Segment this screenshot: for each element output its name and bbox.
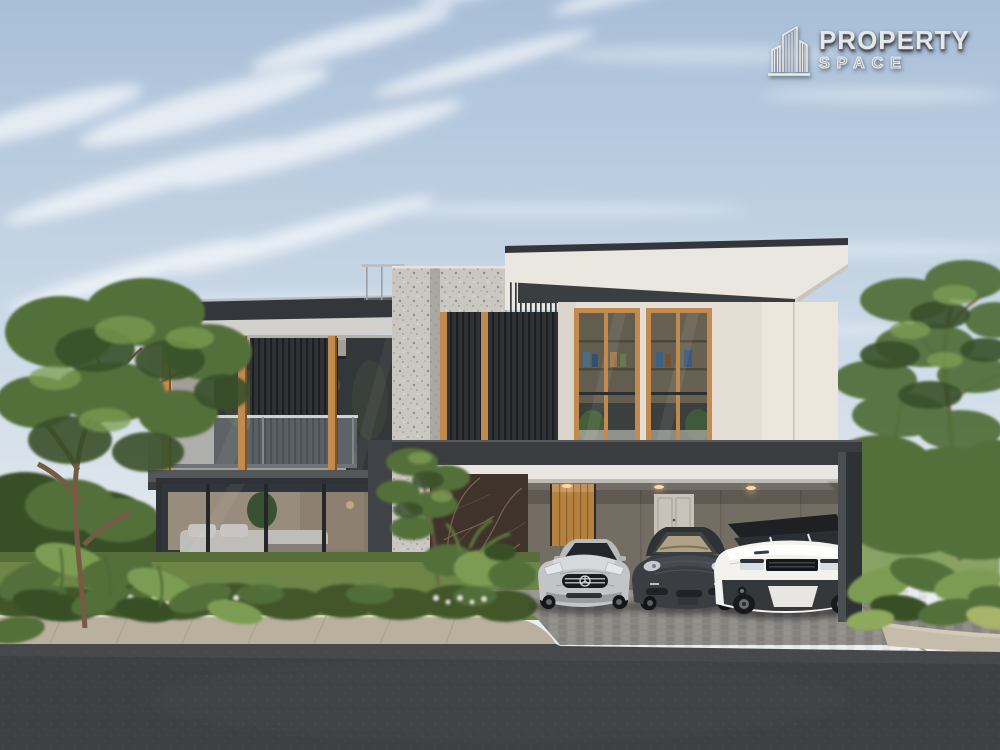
rendering-canvas: PROPERTY SPACE (0, 0, 1000, 750)
suv-grille (766, 559, 818, 571)
logo-text-space: SPACE (819, 56, 970, 72)
upper-window-2 (646, 308, 712, 454)
asphalt-road (0, 644, 1000, 750)
car-white-suv (714, 514, 858, 619)
upper-window-1 (574, 308, 640, 454)
property-space-logo: PROPERTY SPACE (766, 20, 970, 78)
logo-text-property: PROPERTY (819, 27, 970, 53)
carport-fascia (392, 440, 862, 467)
scene-svg (0, 0, 1000, 750)
logo-text: PROPERTY SPACE (819, 27, 970, 72)
skyline-buildings-icon (766, 20, 812, 78)
timber-entry-door (550, 484, 596, 546)
